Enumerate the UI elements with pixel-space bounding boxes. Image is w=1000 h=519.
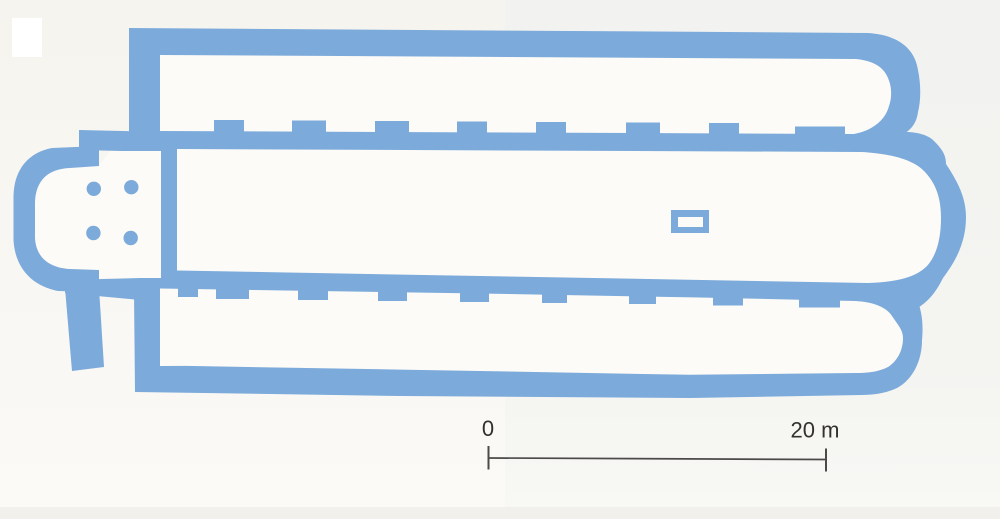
svg-text:20 m: 20 m [791,418,840,443]
svg-text:0: 0 [482,416,494,441]
